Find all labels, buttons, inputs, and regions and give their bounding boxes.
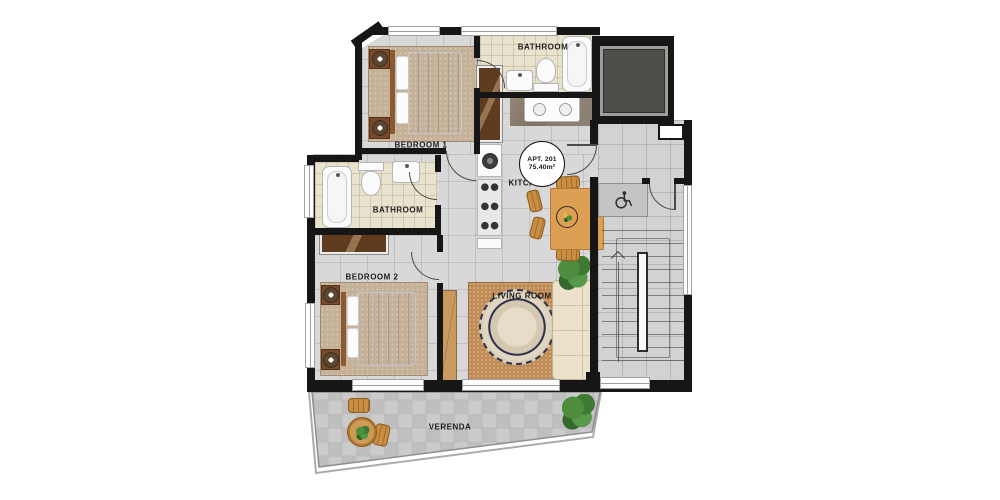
bed1 bbox=[408, 52, 462, 134]
apartment-badge: APT. 201 75.40m² bbox=[519, 141, 565, 187]
kitchen-sink-counter bbox=[524, 96, 580, 122]
window-sliding-door bbox=[352, 379, 424, 391]
wall-segment bbox=[684, 120, 692, 185]
apartment-area: 75.40m² bbox=[529, 164, 556, 172]
wheelchair-icon bbox=[612, 189, 634, 211]
lamp-icon bbox=[372, 120, 388, 136]
lamp-icon bbox=[323, 352, 339, 368]
toilet-bowl-icon bbox=[361, 171, 381, 196]
toilet-bowl-icon bbox=[536, 58, 556, 83]
window bbox=[304, 165, 314, 218]
wall-segment bbox=[476, 148, 480, 154]
living-room-label: LIVING ROOM bbox=[492, 292, 551, 301]
sink-basin bbox=[533, 103, 546, 116]
washer-drum bbox=[482, 153, 498, 169]
bed2 bbox=[358, 292, 416, 366]
door-leaf bbox=[674, 184, 676, 210]
wall-segment bbox=[674, 178, 686, 184]
bed-headboard bbox=[390, 50, 395, 134]
wall-segment bbox=[355, 38, 362, 160]
kitchen-cabinet bbox=[477, 238, 502, 249]
wall-segment bbox=[590, 120, 598, 145]
window-sliding-door bbox=[462, 379, 560, 391]
plant-icon bbox=[562, 394, 596, 430]
bathroom-sink-icon bbox=[506, 70, 533, 91]
wall-segment bbox=[309, 155, 359, 162]
washing-machine-icon bbox=[477, 144, 502, 177]
bathroom-mid-label: BATHROOM bbox=[373, 206, 424, 215]
apartment-number: APT. 201 bbox=[527, 156, 557, 164]
accessible-area bbox=[598, 183, 648, 217]
duct-box bbox=[658, 124, 684, 140]
bedroom2-label: BEDROOM 2 bbox=[346, 273, 399, 282]
door-leaf bbox=[567, 144, 597, 146]
floorplan-canvas: BEDROOM 1 BATHROOM KITCHEN BATHROOM BEDR… bbox=[0, 0, 1000, 500]
wardrobe-bedroom2 bbox=[320, 232, 388, 254]
window bbox=[683, 185, 692, 295]
wall-segment bbox=[480, 92, 592, 98]
wall-segment bbox=[437, 283, 443, 392]
sofa bbox=[552, 280, 593, 380]
veranda-table bbox=[347, 417, 377, 447]
stove-icon bbox=[477, 179, 502, 236]
nightstand bbox=[321, 349, 340, 370]
stair-rail bbox=[637, 252, 648, 352]
toilet-tank bbox=[358, 162, 384, 171]
plant-icon bbox=[356, 426, 370, 440]
veranda-chair bbox=[348, 398, 370, 413]
lamp-icon bbox=[372, 51, 388, 67]
wall-segment bbox=[437, 235, 443, 252]
sink-basin bbox=[559, 103, 572, 116]
window bbox=[388, 26, 440, 36]
window bbox=[461, 26, 557, 36]
nightstand bbox=[369, 117, 390, 139]
bedroom1-label: BEDROOM 1 bbox=[395, 141, 448, 150]
lamp-icon bbox=[323, 287, 339, 303]
bathtub-icon bbox=[322, 166, 352, 228]
nightstand bbox=[321, 285, 340, 305]
wall-segment bbox=[309, 228, 441, 235]
window bbox=[600, 377, 650, 389]
wall-segment bbox=[435, 155, 441, 172]
window bbox=[305, 303, 315, 368]
stairs-direction-line bbox=[618, 262, 619, 362]
elevator-icon bbox=[603, 49, 665, 113]
wall-segment bbox=[474, 33, 480, 58]
nightstand bbox=[369, 49, 390, 69]
bed-headboard bbox=[341, 292, 346, 366]
wall-segment bbox=[684, 295, 692, 392]
toilet-tank bbox=[533, 83, 559, 92]
bathroom-top-label: BATHROOM bbox=[518, 43, 569, 52]
fruit-bowl bbox=[556, 206, 578, 228]
wall-segment bbox=[590, 177, 598, 392]
verenda-label: VERENDA bbox=[429, 423, 472, 432]
